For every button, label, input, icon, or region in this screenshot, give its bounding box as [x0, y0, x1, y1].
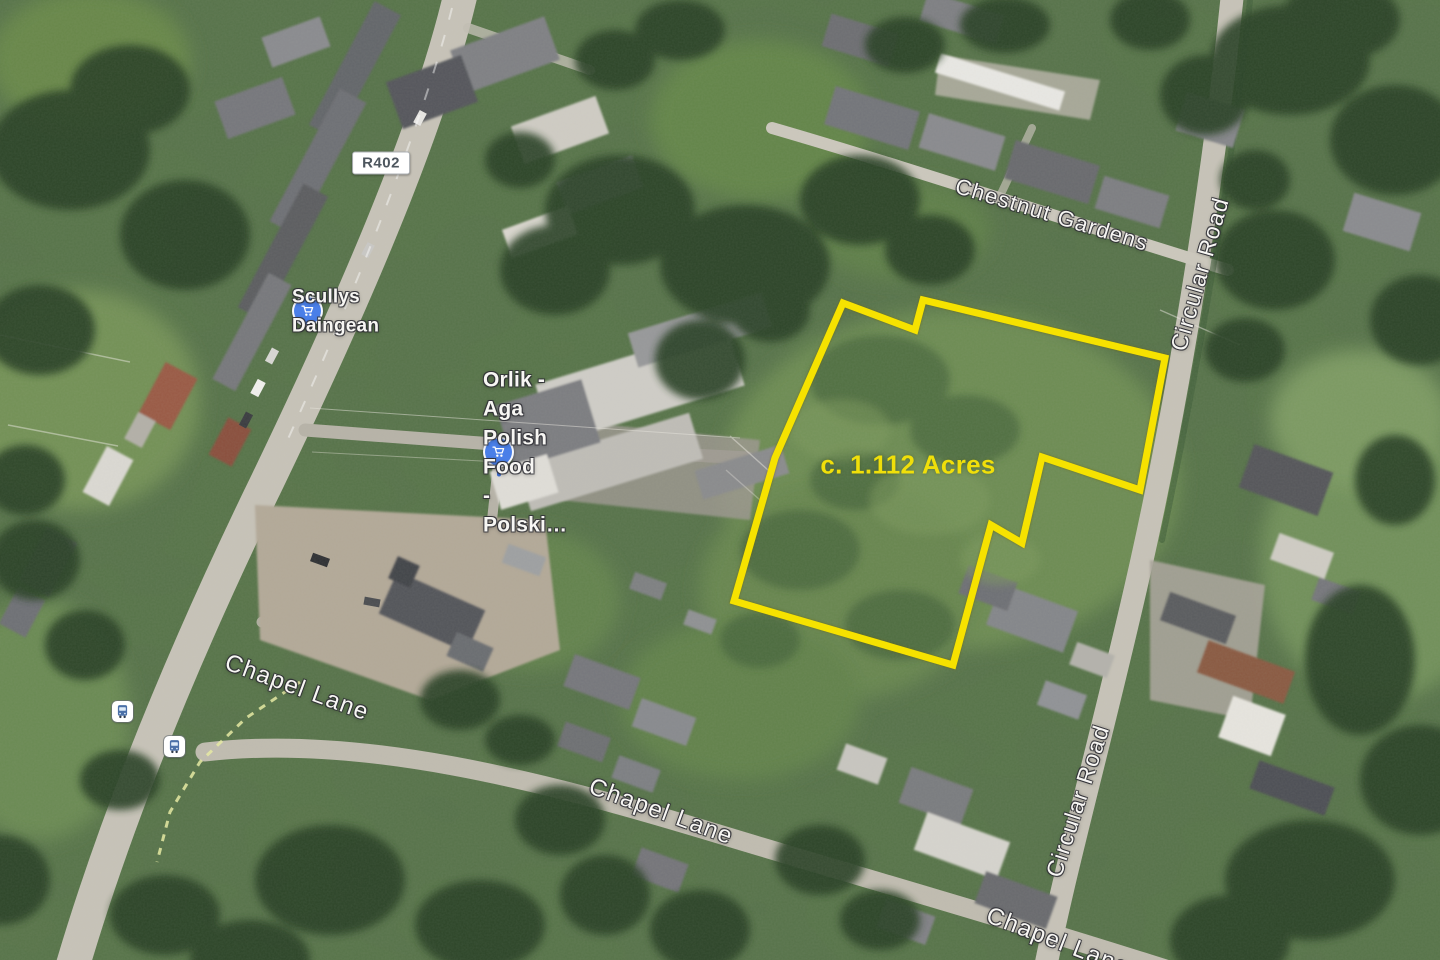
map-canvas[interactable]: R402 Scullys Daingean Orlik - Aga Polish… [0, 0, 1440, 960]
poi-label: Scullys Daingean [292, 282, 379, 340]
bus-stop-icon[interactable] [112, 701, 133, 722]
bus-icon [166, 738, 183, 755]
poi-orlik-aga-polish-food[interactable]: Orlik - Aga Polish Food - Polski… [483, 437, 514, 468]
route-badge-r402: R402 [352, 152, 410, 175]
satellite-imagery [0, 0, 1440, 960]
bus-stop-icon[interactable] [164, 736, 185, 757]
photo-grain [0, 0, 1440, 960]
poi-label: Orlik - Aga Polish Food - Polski… [483, 365, 567, 539]
poi-scullys-daingean[interactable]: Scullys Daingean [292, 296, 323, 327]
parcel-area-label: c. 1.112 Acres [820, 450, 995, 481]
bus-icon [114, 703, 131, 720]
